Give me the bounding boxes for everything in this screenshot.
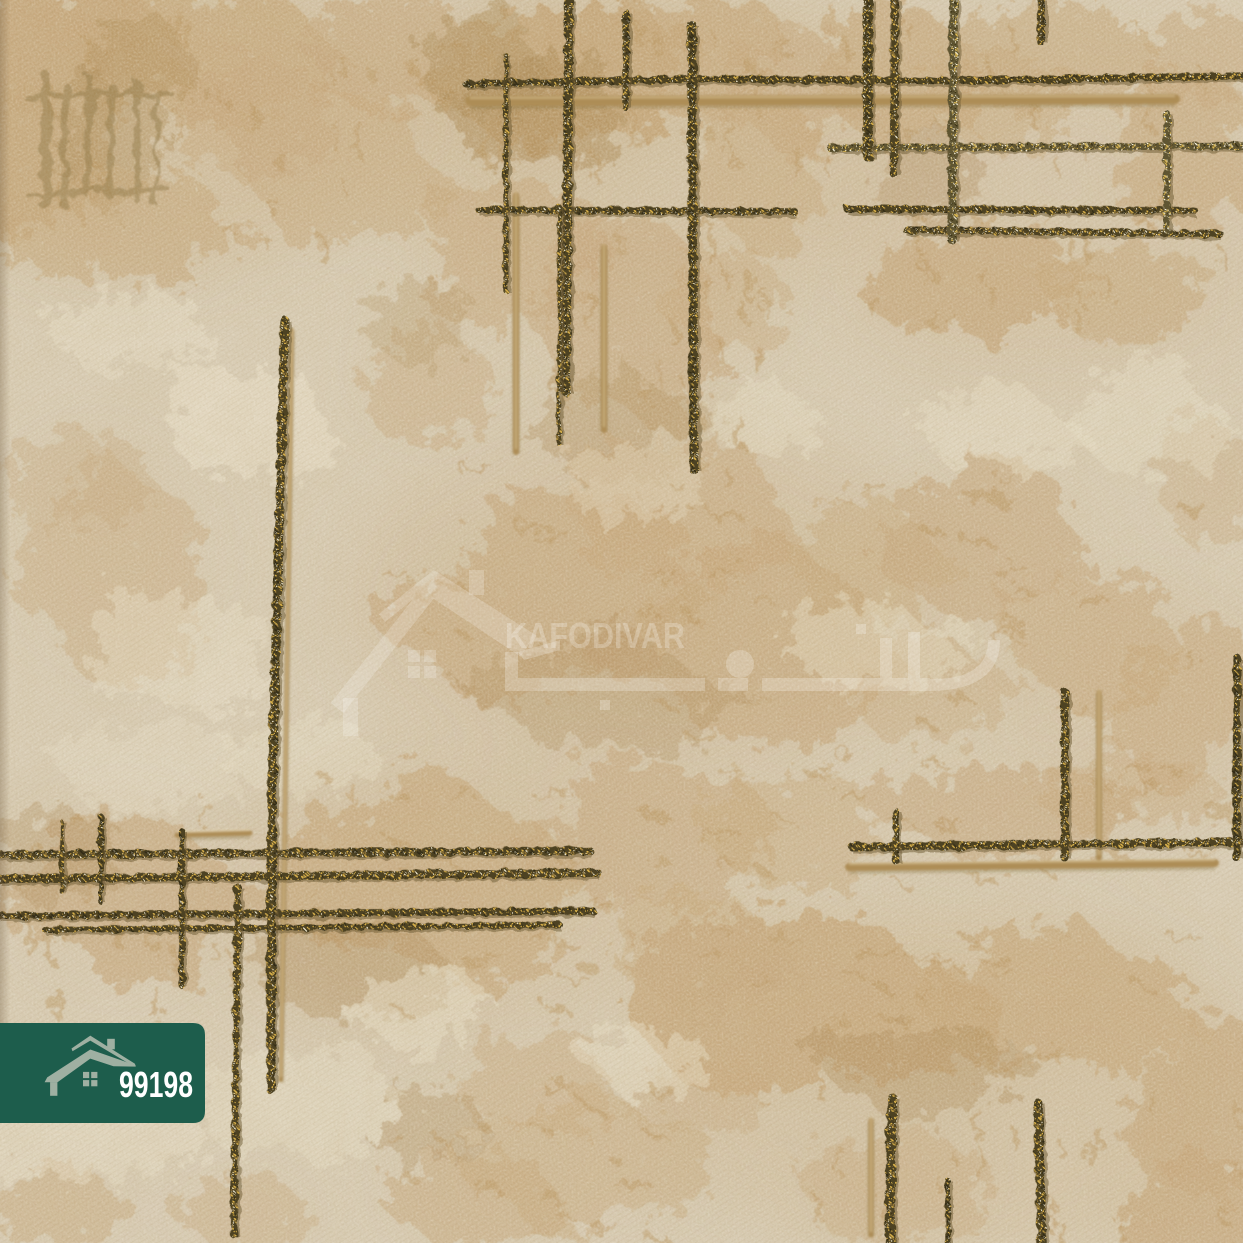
svg-text:99198: 99198 — [119, 1064, 193, 1105]
